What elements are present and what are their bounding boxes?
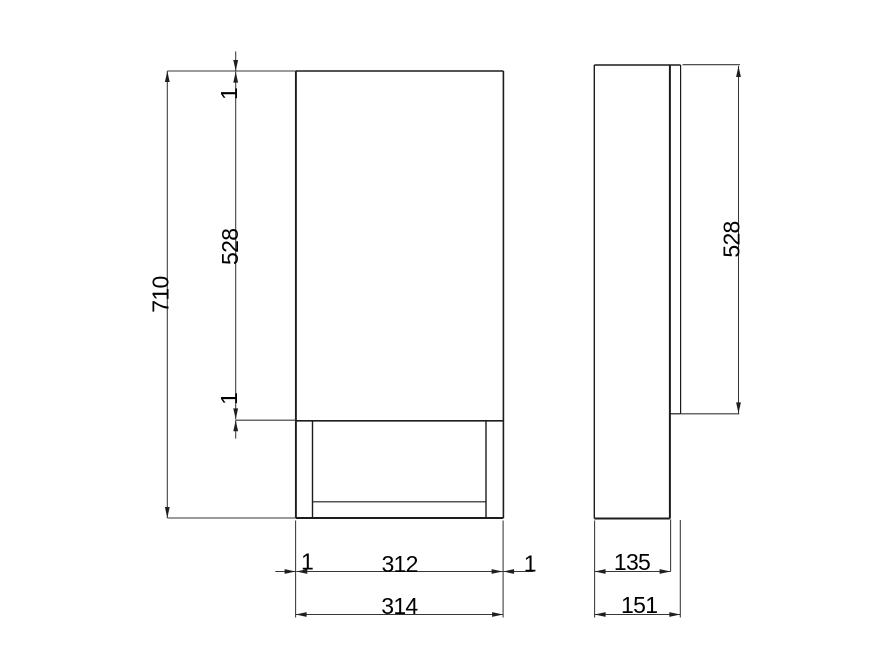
svg-text:1: 1 bbox=[524, 551, 536, 577]
svg-text:1: 1 bbox=[216, 88, 242, 100]
svg-text:312: 312 bbox=[381, 551, 417, 577]
svg-text:1: 1 bbox=[301, 549, 313, 575]
svg-text:528: 528 bbox=[719, 221, 745, 257]
svg-text:151: 151 bbox=[621, 592, 657, 618]
svg-text:710: 710 bbox=[147, 276, 173, 312]
svg-text:1: 1 bbox=[216, 393, 242, 405]
svg-text:135: 135 bbox=[614, 549, 650, 575]
svg-text:528: 528 bbox=[217, 229, 243, 265]
svg-text:314: 314 bbox=[381, 593, 418, 619]
